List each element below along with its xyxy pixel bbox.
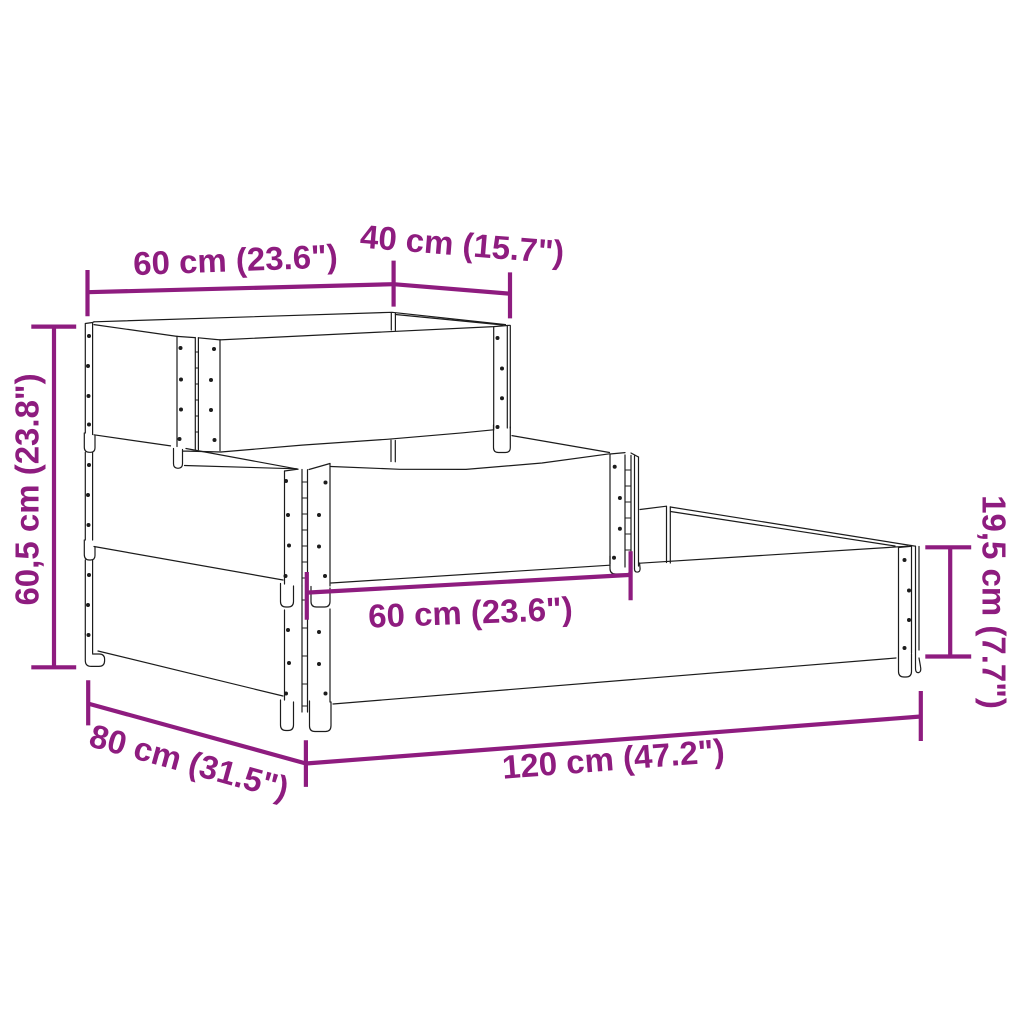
svg-text:60 cm (23.6"): 60 cm (23.6") — [132, 237, 338, 282]
svg-text:60 cm (23.6"): 60 cm (23.6") — [367, 590, 573, 635]
svg-text:60,5 cm (23.8"): 60,5 cm (23.8") — [9, 373, 46, 605]
svg-text:19,5 cm (7.7"): 19,5 cm (7.7") — [975, 495, 1012, 709]
